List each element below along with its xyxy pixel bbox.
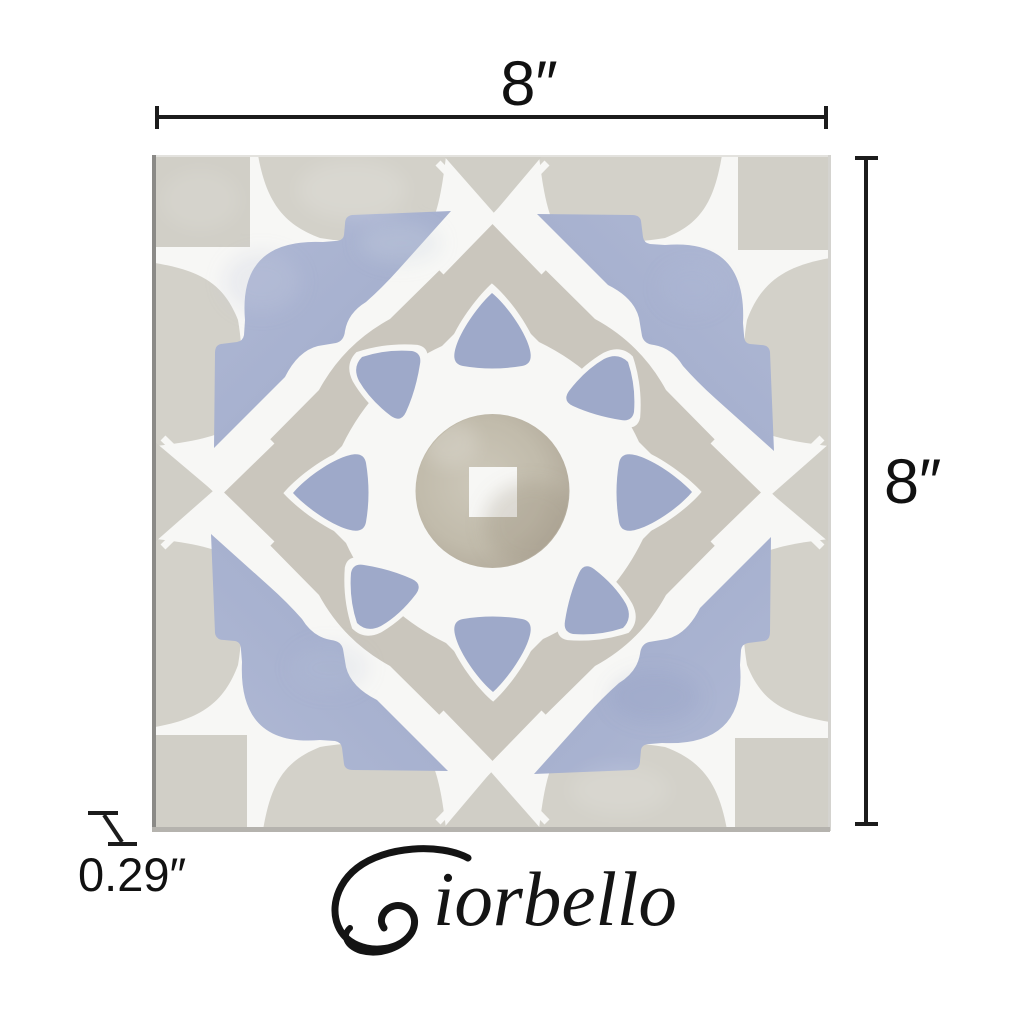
svg-text:8″: 8″: [500, 49, 557, 119]
svg-text:8″: 8″: [884, 447, 941, 517]
svg-text:0.29″: 0.29″: [78, 848, 186, 901]
svg-text:iorbello: iorbello: [433, 856, 677, 942]
